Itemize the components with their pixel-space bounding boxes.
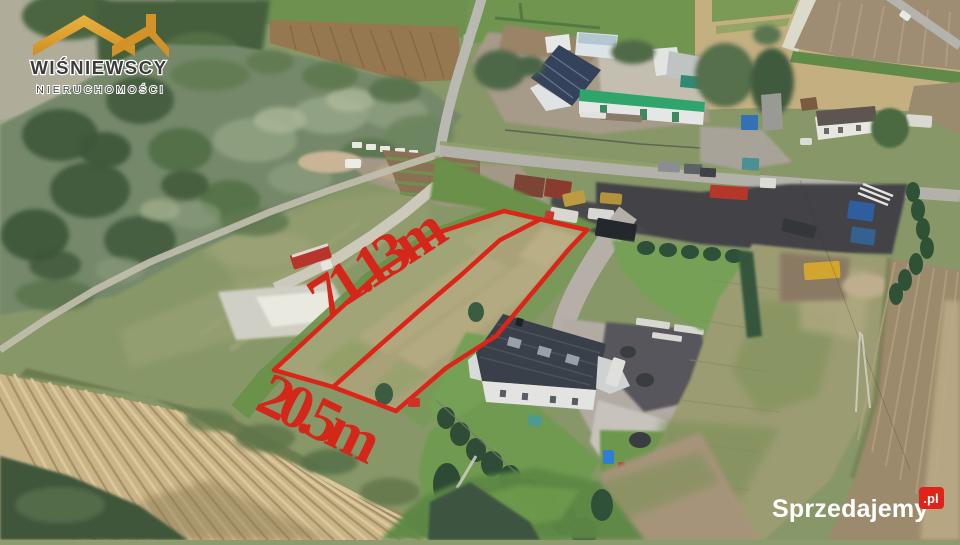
svg-text:Sprzedajemy: Sprzedajemy bbox=[772, 495, 928, 523]
svg-text:NIERUCHOMOŚCI: NIERUCHOMOŚCI bbox=[36, 83, 165, 96]
svg-text:.pl: .pl bbox=[923, 491, 938, 506]
svg-text:WIŚNIEWSCY: WIŚNIEWSCY bbox=[30, 57, 167, 78]
